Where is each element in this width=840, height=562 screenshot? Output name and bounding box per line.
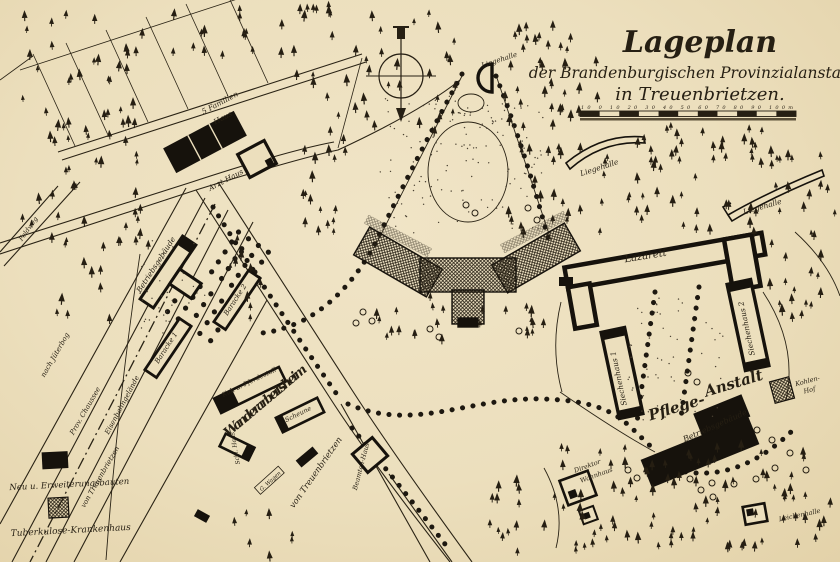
tree-icon bbox=[812, 231, 816, 240]
tree-icon bbox=[441, 306, 445, 313]
tree-icon bbox=[290, 537, 293, 544]
tree-icon bbox=[770, 161, 774, 169]
tree-icon bbox=[50, 19, 54, 27]
tree-icon bbox=[99, 266, 103, 274]
tree-icon bbox=[119, 107, 122, 113]
tree-icon bbox=[249, 315, 252, 322]
tree-icon bbox=[623, 445, 626, 452]
tree-icon bbox=[68, 166, 71, 172]
tree-icon bbox=[670, 196, 675, 206]
tree-icon bbox=[562, 504, 565, 511]
tree-icon bbox=[814, 534, 818, 542]
tree-icon bbox=[552, 157, 556, 165]
tree-icon bbox=[748, 218, 753, 228]
map-subtitle-2: in Treuenbrietzen. bbox=[615, 84, 784, 105]
tree-icon bbox=[804, 492, 807, 499]
tree-icon bbox=[25, 26, 28, 33]
tree-icon bbox=[635, 207, 639, 215]
tree-icon bbox=[531, 329, 534, 336]
tree-icon bbox=[786, 151, 791, 161]
tree-icon bbox=[565, 446, 569, 454]
tree-icon bbox=[245, 510, 248, 517]
tree-icon bbox=[712, 155, 716, 162]
tree-icon bbox=[306, 5, 310, 13]
tree-icon bbox=[50, 191, 54, 199]
tree-icon bbox=[501, 533, 505, 541]
tree-icon bbox=[298, 5, 302, 14]
tree-icon bbox=[778, 208, 781, 214]
tree-icon bbox=[655, 188, 659, 197]
tree-icon bbox=[765, 472, 770, 482]
legend-label-tb-hospital: Tuberkulose-Krankenhaus bbox=[11, 523, 132, 539]
tree-icon bbox=[795, 539, 799, 547]
tree-icon bbox=[36, 194, 41, 204]
tree-icon bbox=[56, 213, 60, 221]
tree-icon bbox=[761, 469, 765, 478]
tree-icon bbox=[451, 109, 454, 115]
tree-icon bbox=[672, 479, 677, 489]
tree-icon bbox=[691, 533, 695, 542]
tree-icon bbox=[665, 126, 669, 133]
tree-icon bbox=[759, 159, 764, 168]
tree-icon bbox=[64, 168, 67, 175]
tree-icon bbox=[66, 311, 70, 319]
tree-icon bbox=[86, 133, 89, 140]
tree-icon bbox=[593, 530, 596, 537]
tree-icon bbox=[361, 94, 367, 105]
tree-icon bbox=[541, 319, 545, 328]
label-prov-chaussee: Prov. Chaussee bbox=[68, 386, 102, 438]
tree-icon bbox=[365, 111, 370, 120]
tree-icon bbox=[238, 13, 242, 21]
tree-icon bbox=[527, 145, 532, 155]
tree-icon bbox=[267, 552, 272, 562]
tree-icon bbox=[793, 287, 796, 293]
tree-icon bbox=[708, 225, 713, 235]
tree-icon bbox=[657, 543, 661, 550]
tree-icon bbox=[784, 279, 787, 286]
tree-icon bbox=[602, 171, 606, 178]
tree-icon bbox=[748, 125, 751, 132]
tree-icon bbox=[395, 308, 398, 315]
tree-icon bbox=[678, 157, 681, 164]
tree-icon bbox=[353, 103, 358, 113]
tree-icon bbox=[695, 225, 699, 233]
tree-icon bbox=[818, 181, 823, 190]
tree-icon bbox=[504, 307, 508, 315]
tree-icon bbox=[171, 10, 176, 20]
tree-icon bbox=[341, 135, 345, 144]
tree-icon bbox=[694, 477, 698, 486]
tree-icon bbox=[490, 494, 494, 502]
tree-icon bbox=[816, 273, 819, 279]
tree-icon bbox=[645, 206, 649, 215]
tree-icon bbox=[138, 229, 143, 239]
tree-icon bbox=[694, 504, 699, 513]
tree-icon bbox=[84, 126, 89, 135]
tree-icon bbox=[50, 233, 54, 242]
tree-icon bbox=[731, 477, 735, 484]
tree-icon bbox=[635, 174, 640, 184]
tree-icon bbox=[789, 295, 794, 305]
tree-icon bbox=[611, 482, 616, 492]
tree-icon bbox=[488, 520, 491, 528]
tree-icon bbox=[669, 533, 673, 540]
tree-icon bbox=[635, 496, 638, 502]
legend-swatch-new-buildings bbox=[42, 451, 69, 469]
tree-icon bbox=[77, 70, 82, 80]
tree-icon bbox=[509, 216, 513, 224]
tree-icon bbox=[742, 135, 746, 145]
tree-icon bbox=[828, 499, 833, 508]
tree-icon bbox=[719, 143, 724, 153]
tree-icon bbox=[561, 461, 565, 470]
tree-icon bbox=[495, 494, 499, 503]
tree-icon bbox=[575, 541, 578, 548]
tree-icon bbox=[551, 22, 555, 31]
tree-icon bbox=[131, 99, 136, 109]
tree-icon bbox=[94, 158, 97, 165]
tree-icon bbox=[332, 218, 335, 224]
tree-icon bbox=[514, 521, 519, 530]
tree-icon bbox=[670, 151, 674, 160]
tree-icon bbox=[53, 137, 57, 146]
tree-icon bbox=[22, 12, 27, 22]
scale-bar: 10 0 10 20 30 40 50 60 70 80 90 100m bbox=[580, 105, 796, 121]
building-kohlen-hof bbox=[769, 377, 794, 403]
tree-icon bbox=[291, 532, 294, 538]
tree-icon bbox=[569, 34, 573, 42]
tree-icon bbox=[625, 531, 630, 541]
tree-icon bbox=[760, 128, 763, 135]
tree-icon bbox=[55, 309, 58, 316]
tree-icon bbox=[506, 529, 510, 536]
tree-icon bbox=[517, 484, 522, 494]
building-tuberkulose-krankenhaus bbox=[354, 223, 581, 327]
tree-icon bbox=[96, 55, 101, 65]
tree-icon bbox=[537, 33, 541, 41]
tree-icon bbox=[640, 216, 644, 223]
tree-icon bbox=[577, 83, 583, 94]
tree-icon bbox=[788, 484, 792, 494]
tree-icon bbox=[516, 87, 519, 94]
tree-icon bbox=[248, 539, 252, 547]
tree-icon bbox=[790, 313, 794, 322]
tree-icon bbox=[751, 155, 755, 162]
tree-icon bbox=[310, 172, 315, 183]
tree-icon bbox=[202, 26, 207, 37]
label-liegehalle-mid: Liegehalle bbox=[578, 157, 620, 178]
tree-icon bbox=[704, 497, 709, 507]
site-plan-page: 10 0 10 20 30 40 50 60 70 80 90 100m Lag… bbox=[0, 0, 840, 562]
building-arzt-haus bbox=[238, 140, 277, 177]
tree-icon bbox=[517, 500, 521, 508]
tree-icon bbox=[542, 87, 547, 97]
tree-icon bbox=[563, 90, 566, 97]
tree-icon bbox=[649, 146, 653, 154]
tree-icon bbox=[280, 20, 284, 29]
tree-icon bbox=[509, 61, 513, 70]
tree-icon bbox=[692, 527, 695, 533]
tree-icon bbox=[525, 35, 529, 43]
tree-icon bbox=[506, 207, 511, 217]
tree-icon bbox=[192, 43, 195, 50]
tree-icon bbox=[817, 520, 822, 530]
tree-icon bbox=[680, 192, 683, 198]
tree-icon bbox=[790, 472, 794, 479]
tree-icon bbox=[21, 96, 24, 102]
scale-ticks: 10 0 10 20 30 40 50 60 70 80 90 100m bbox=[581, 105, 793, 111]
tree-icon bbox=[121, 119, 125, 127]
tree-icon bbox=[344, 75, 349, 86]
tree-icon bbox=[21, 215, 24, 223]
tree-icon bbox=[67, 136, 70, 142]
tree-icon bbox=[328, 127, 332, 135]
tree-icon bbox=[724, 153, 728, 161]
tree-icon bbox=[326, 146, 331, 156]
map-subtitle: der Brandenburgischen Provinzialanstalte… bbox=[529, 64, 840, 82]
tree-icon bbox=[333, 206, 337, 214]
tree-icon bbox=[826, 185, 830, 193]
tree-icon bbox=[675, 130, 680, 139]
tree-icon bbox=[599, 525, 602, 531]
tree-icon bbox=[635, 533, 640, 544]
tree-icon bbox=[98, 284, 102, 293]
tree-icon bbox=[267, 509, 272, 519]
tree-icon bbox=[302, 11, 308, 22]
legend-swatch-tb-hospital bbox=[48, 497, 69, 518]
tree-icon bbox=[628, 478, 632, 487]
tree-icon bbox=[680, 139, 684, 147]
tree-icon bbox=[752, 542, 757, 551]
tree-icon bbox=[776, 156, 779, 162]
tree-icon bbox=[790, 156, 793, 163]
tree-icon bbox=[559, 43, 562, 50]
building-five-family-house bbox=[163, 111, 247, 173]
tree-icon bbox=[783, 253, 787, 261]
tree-icon bbox=[62, 124, 65, 131]
tree-icon bbox=[413, 19, 416, 25]
tree-icon bbox=[389, 327, 393, 336]
tree-icon bbox=[138, 205, 142, 214]
tree-icon bbox=[551, 120, 556, 129]
tree-icon bbox=[326, 221, 330, 229]
tree-icon bbox=[497, 528, 500, 534]
tree-icon bbox=[770, 240, 774, 247]
tree-icon bbox=[701, 128, 705, 136]
tree-icon bbox=[124, 137, 128, 146]
tree-icon bbox=[315, 6, 318, 14]
tree-icon bbox=[779, 305, 784, 316]
tree-icon bbox=[417, 118, 422, 128]
tree-icon bbox=[818, 288, 823, 298]
tree-icon bbox=[279, 48, 284, 58]
tree-icon bbox=[558, 148, 563, 159]
tree-icon bbox=[805, 300, 808, 307]
tree-icon bbox=[800, 311, 804, 319]
tree-icon bbox=[809, 302, 812, 309]
tree-icon bbox=[674, 146, 679, 155]
tree-icon bbox=[135, 152, 138, 159]
tree-icon bbox=[304, 191, 307, 197]
tree-icon bbox=[819, 152, 823, 159]
tree-icon bbox=[59, 294, 64, 305]
tree-icon bbox=[546, 147, 551, 156]
tree-icon bbox=[706, 518, 709, 524]
tree-icon bbox=[496, 482, 501, 492]
tree-icon bbox=[524, 23, 528, 31]
tree-icon bbox=[533, 35, 538, 45]
tree-icon bbox=[773, 485, 776, 491]
tree-icon bbox=[750, 149, 754, 156]
tree-icon bbox=[778, 301, 781, 307]
tree-icon bbox=[669, 540, 673, 547]
tree-icon bbox=[566, 47, 569, 53]
tree-icon bbox=[716, 498, 719, 505]
tree-icon bbox=[385, 333, 388, 340]
tree-icon bbox=[134, 237, 138, 245]
tree-icon bbox=[605, 536, 608, 543]
tree-icon bbox=[807, 190, 812, 199]
tree-icon bbox=[517, 25, 522, 35]
tree-icon bbox=[513, 32, 517, 39]
tree-icon bbox=[372, 121, 377, 130]
tree-icon bbox=[303, 218, 307, 227]
tree-icon bbox=[126, 116, 131, 127]
tree-icon bbox=[330, 32, 334, 40]
tree-icon bbox=[591, 539, 595, 547]
tree-icon bbox=[251, 47, 254, 54]
tree-icon bbox=[435, 319, 439, 328]
tree-icon bbox=[682, 222, 685, 229]
tree-icon bbox=[379, 27, 382, 34]
tree-icon bbox=[302, 146, 306, 155]
tree-icon bbox=[600, 199, 604, 206]
tree-icon bbox=[650, 522, 653, 529]
building-shed-road bbox=[194, 509, 210, 523]
tree-icon bbox=[428, 70, 432, 79]
tree-icon bbox=[308, 195, 312, 204]
tree-icon bbox=[583, 543, 586, 550]
road-feldweg bbox=[0, 182, 80, 266]
tree-icon bbox=[574, 547, 577, 554]
tree-icon bbox=[82, 258, 87, 268]
tree-icon bbox=[66, 118, 71, 127]
tree-icon bbox=[453, 38, 456, 44]
tree-icon bbox=[99, 157, 104, 168]
tree-icon bbox=[136, 216, 139, 223]
tree-icon bbox=[311, 5, 315, 13]
tree-icon bbox=[316, 227, 320, 236]
label-von-treuenbrietzen-center: von Treuenbrietzen bbox=[288, 435, 345, 510]
tree-icon bbox=[387, 82, 390, 88]
tree-icon bbox=[370, 12, 375, 22]
label-g-wagen-box: G. Wagen bbox=[254, 466, 284, 494]
tree-icon bbox=[669, 123, 672, 130]
tree-icon bbox=[394, 59, 399, 70]
tree-icon bbox=[516, 548, 519, 555]
tree-icon bbox=[802, 203, 806, 212]
tree-icon bbox=[102, 111, 107, 120]
tree-icon bbox=[431, 303, 435, 310]
tree-icon bbox=[641, 193, 644, 199]
tree-icon bbox=[809, 268, 814, 277]
tree-icon bbox=[598, 228, 601, 235]
tree-icon bbox=[333, 155, 336, 162]
tree-icon bbox=[44, 108, 48, 116]
tree-icon bbox=[659, 165, 662, 173]
tree-icon bbox=[55, 120, 60, 131]
tree-icon bbox=[221, 51, 225, 59]
tree-icon bbox=[546, 41, 550, 49]
tree-icon bbox=[769, 147, 774, 157]
map-title: Lageplan bbox=[622, 25, 777, 60]
tree-icon bbox=[695, 208, 699, 216]
tree-icon bbox=[397, 326, 401, 335]
tree-icon bbox=[325, 93, 329, 101]
tree-icon bbox=[822, 517, 826, 526]
tree-icon bbox=[50, 42, 54, 50]
tree-icon bbox=[89, 268, 94, 278]
tree-icon bbox=[723, 481, 728, 492]
tree-icon bbox=[650, 485, 655, 496]
site-plan-map: 10 0 10 20 30 40 50 60 70 80 90 100m Lag… bbox=[0, 0, 840, 562]
tree-icon bbox=[550, 104, 554, 112]
tree-icon bbox=[380, 49, 384, 57]
tree-icon bbox=[680, 533, 684, 541]
tree-icon bbox=[93, 15, 97, 24]
tree-icon bbox=[332, 229, 335, 235]
compass-rose bbox=[366, 27, 436, 122]
tree-icon bbox=[134, 47, 138, 56]
tree-icon bbox=[598, 449, 601, 456]
tree-icon bbox=[529, 306, 534, 317]
tree-icon bbox=[521, 123, 525, 131]
tree-icon bbox=[48, 132, 53, 142]
tree-icon bbox=[28, 50, 33, 60]
tree-icon bbox=[249, 303, 252, 310]
tree-icon bbox=[135, 159, 138, 165]
tree-icon bbox=[232, 518, 236, 526]
tree-icon bbox=[171, 48, 175, 56]
tree-icon bbox=[561, 199, 564, 206]
tree-icon bbox=[760, 450, 763, 456]
tree-icon bbox=[294, 71, 299, 80]
tree-icon bbox=[620, 488, 624, 497]
tree-icon bbox=[367, 66, 372, 76]
building-wagen-shed bbox=[296, 446, 319, 467]
tree-icon bbox=[711, 142, 716, 151]
tree-icon bbox=[595, 93, 599, 102]
tree-icon bbox=[133, 188, 138, 198]
tree-icon bbox=[551, 190, 556, 200]
tree-icon bbox=[440, 335, 444, 344]
tree-icon bbox=[311, 72, 314, 78]
tree-icon bbox=[792, 495, 795, 501]
tree-icon bbox=[542, 521, 547, 531]
tree-icon bbox=[560, 444, 563, 451]
building-lazarett-annex bbox=[559, 277, 573, 286]
tree-icon bbox=[107, 131, 111, 140]
tree-icon bbox=[337, 112, 340, 118]
tree-icon bbox=[525, 330, 529, 339]
tree-icon bbox=[818, 251, 823, 262]
tree-icon bbox=[694, 174, 697, 181]
tree-icon bbox=[521, 44, 525, 52]
tree-icon bbox=[652, 513, 655, 519]
tree-icon bbox=[768, 279, 773, 289]
tree-icon bbox=[146, 241, 150, 250]
